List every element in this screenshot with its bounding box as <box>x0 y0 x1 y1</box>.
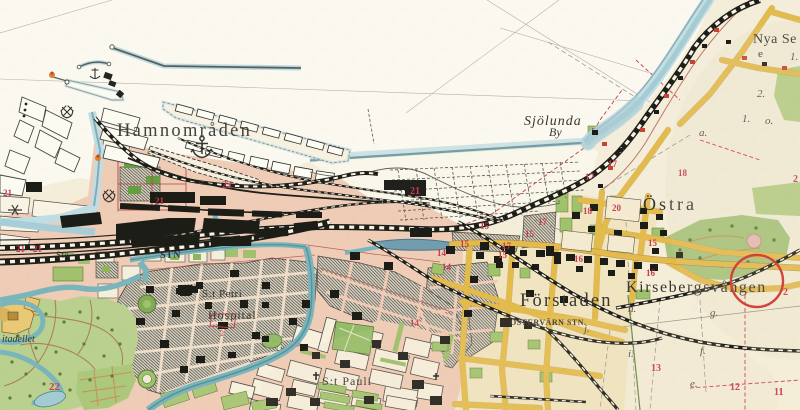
svg-text:15: 15 <box>480 221 490 231</box>
svg-text:Hamnområden: Hamnområden <box>117 121 252 141</box>
svg-text:14: 14 <box>442 262 452 272</box>
svg-text:14: 14 <box>437 248 447 258</box>
svg-text:16: 16 <box>574 254 584 264</box>
svg-text:2: 2 <box>783 287 788 298</box>
svg-text:18: 18 <box>678 168 688 178</box>
svg-text:22: 22 <box>222 180 232 191</box>
svg-text:Hospital: Hospital <box>208 308 257 322</box>
svg-text:Nya Se: Nya Se <box>753 32 797 47</box>
svg-text:By: By <box>549 125 562 139</box>
svg-text:18: 18 <box>583 206 593 216</box>
svg-text:21: 21 <box>16 244 26 254</box>
svg-text:12: 12 <box>730 382 740 393</box>
svg-text:e: e <box>758 48 763 60</box>
svg-text:f.: f. <box>700 345 706 357</box>
svg-text:e.: e. <box>690 378 698 390</box>
svg-text:Förstaden: Förstaden <box>520 291 613 311</box>
svg-text:2: 2 <box>220 329 224 338</box>
svg-text:S:t Petri: S:t Petri <box>202 288 242 300</box>
svg-text:11: 11 <box>774 387 783 398</box>
svg-text:h.: h. <box>628 303 636 315</box>
svg-text:22: 22 <box>49 381 61 393</box>
svg-text:Östra: Östra <box>643 194 697 214</box>
svg-text:21: 21 <box>155 196 165 206</box>
svg-text:1.: 1. <box>742 113 750 125</box>
svg-text:13: 13 <box>651 363 661 374</box>
svg-text:2.: 2. <box>757 88 765 100</box>
svg-text:itadellet: itadellet <box>2 334 35 345</box>
svg-text:2: 2 <box>793 174 798 185</box>
svg-text:14: 14 <box>410 318 420 328</box>
svg-text:S:t Pauli: S:t Pauli <box>322 374 372 388</box>
svg-text:g.: g. <box>710 307 718 319</box>
svg-text:21: 21 <box>33 244 43 254</box>
svg-text:21: 21 <box>410 186 420 197</box>
svg-text:STN: STN <box>160 250 181 261</box>
svg-text:16: 16 <box>646 268 656 278</box>
svg-text:i.: i. <box>628 348 634 360</box>
svg-text:j.: j. <box>582 323 590 335</box>
svg-text:15: 15 <box>525 229 535 239</box>
svg-text:1.: 1. <box>790 51 798 63</box>
svg-text:21: 21 <box>3 188 13 198</box>
svg-text:20: 20 <box>612 203 622 213</box>
svg-text:17: 17 <box>608 159 618 169</box>
svg-text:ÖSTERVÄRN STN.: ÖSTERVÄRN STN. <box>510 318 587 327</box>
svg-text:15: 15 <box>648 238 658 248</box>
svg-text:Kirsebergsvången: Kirsebergsvången <box>626 279 767 296</box>
svg-text:15: 15 <box>460 239 470 249</box>
svg-text:17: 17 <box>502 241 512 251</box>
svg-text:o.: o. <box>765 115 773 127</box>
svg-text:Stn: Stn <box>56 250 70 260</box>
svg-text:a.: a. <box>699 127 707 139</box>
svg-text:17: 17 <box>538 217 548 227</box>
svg-text:15: 15 <box>498 250 508 260</box>
svg-text:17: 17 <box>585 172 595 182</box>
